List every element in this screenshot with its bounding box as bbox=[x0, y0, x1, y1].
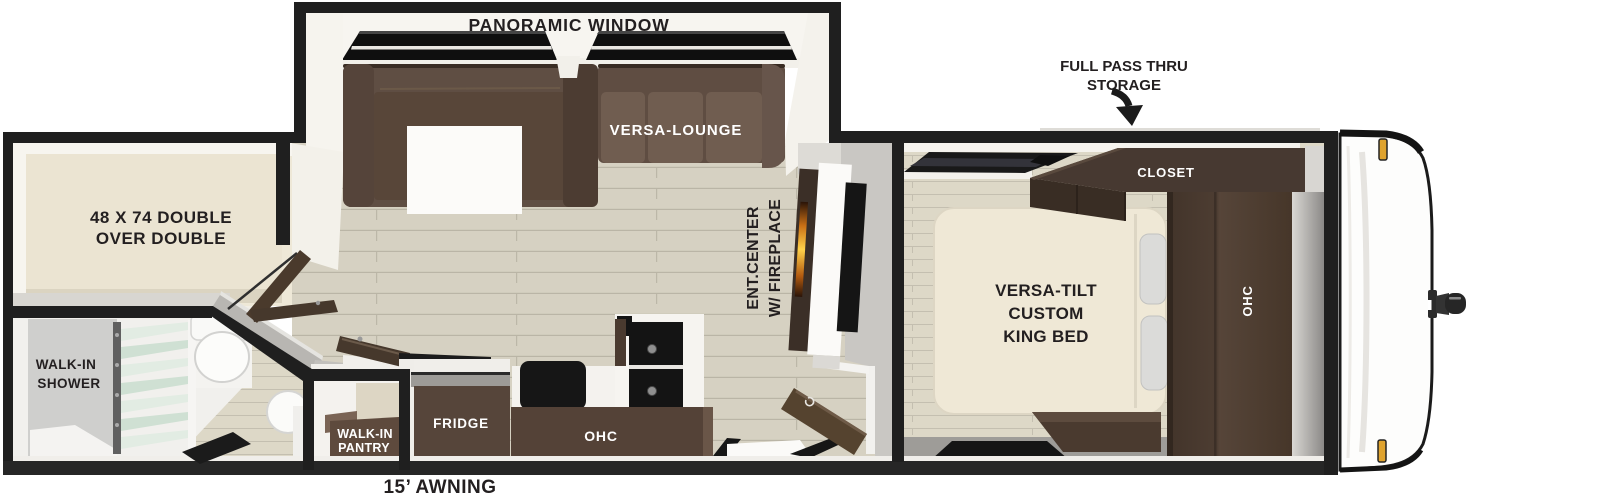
svg-text:STORAGE: STORAGE bbox=[1087, 77, 1161, 94]
svg-text:VERSA-LOUNGE: VERSA-LOUNGE bbox=[610, 122, 743, 139]
svg-text:OVER DOUBLE: OVER DOUBLE bbox=[96, 229, 226, 248]
svg-text:OHC: OHC bbox=[1240, 285, 1255, 316]
svg-text:FRIDGE: FRIDGE bbox=[433, 416, 489, 431]
svg-text:PANORAMIC WINDOW: PANORAMIC WINDOW bbox=[468, 15, 669, 35]
svg-text:PANTRY: PANTRY bbox=[338, 441, 390, 455]
svg-text:ENT.CENTER: ENT.CENTER bbox=[745, 206, 762, 310]
svg-text:48 X 74 DOUBLE: 48 X 74 DOUBLE bbox=[90, 208, 232, 227]
svg-text:W/ FIREPLACE: W/ FIREPLACE bbox=[767, 199, 784, 317]
svg-text:FULL PASS THRU: FULL PASS THRU bbox=[1060, 58, 1188, 75]
svg-text:CUSTOM: CUSTOM bbox=[1008, 304, 1083, 323]
svg-text:SHOWER: SHOWER bbox=[37, 376, 100, 391]
svg-text:OHC: OHC bbox=[584, 428, 618, 444]
svg-text:VERSA-TILT: VERSA-TILT bbox=[995, 281, 1097, 300]
svg-text:WALK-IN: WALK-IN bbox=[36, 357, 97, 372]
svg-text:KING BED: KING BED bbox=[1003, 327, 1089, 346]
svg-text:CLOSET: CLOSET bbox=[1137, 165, 1195, 180]
svg-text:15’ AWNING: 15’ AWNING bbox=[383, 477, 496, 495]
svg-text:WALK-IN: WALK-IN bbox=[337, 427, 393, 441]
